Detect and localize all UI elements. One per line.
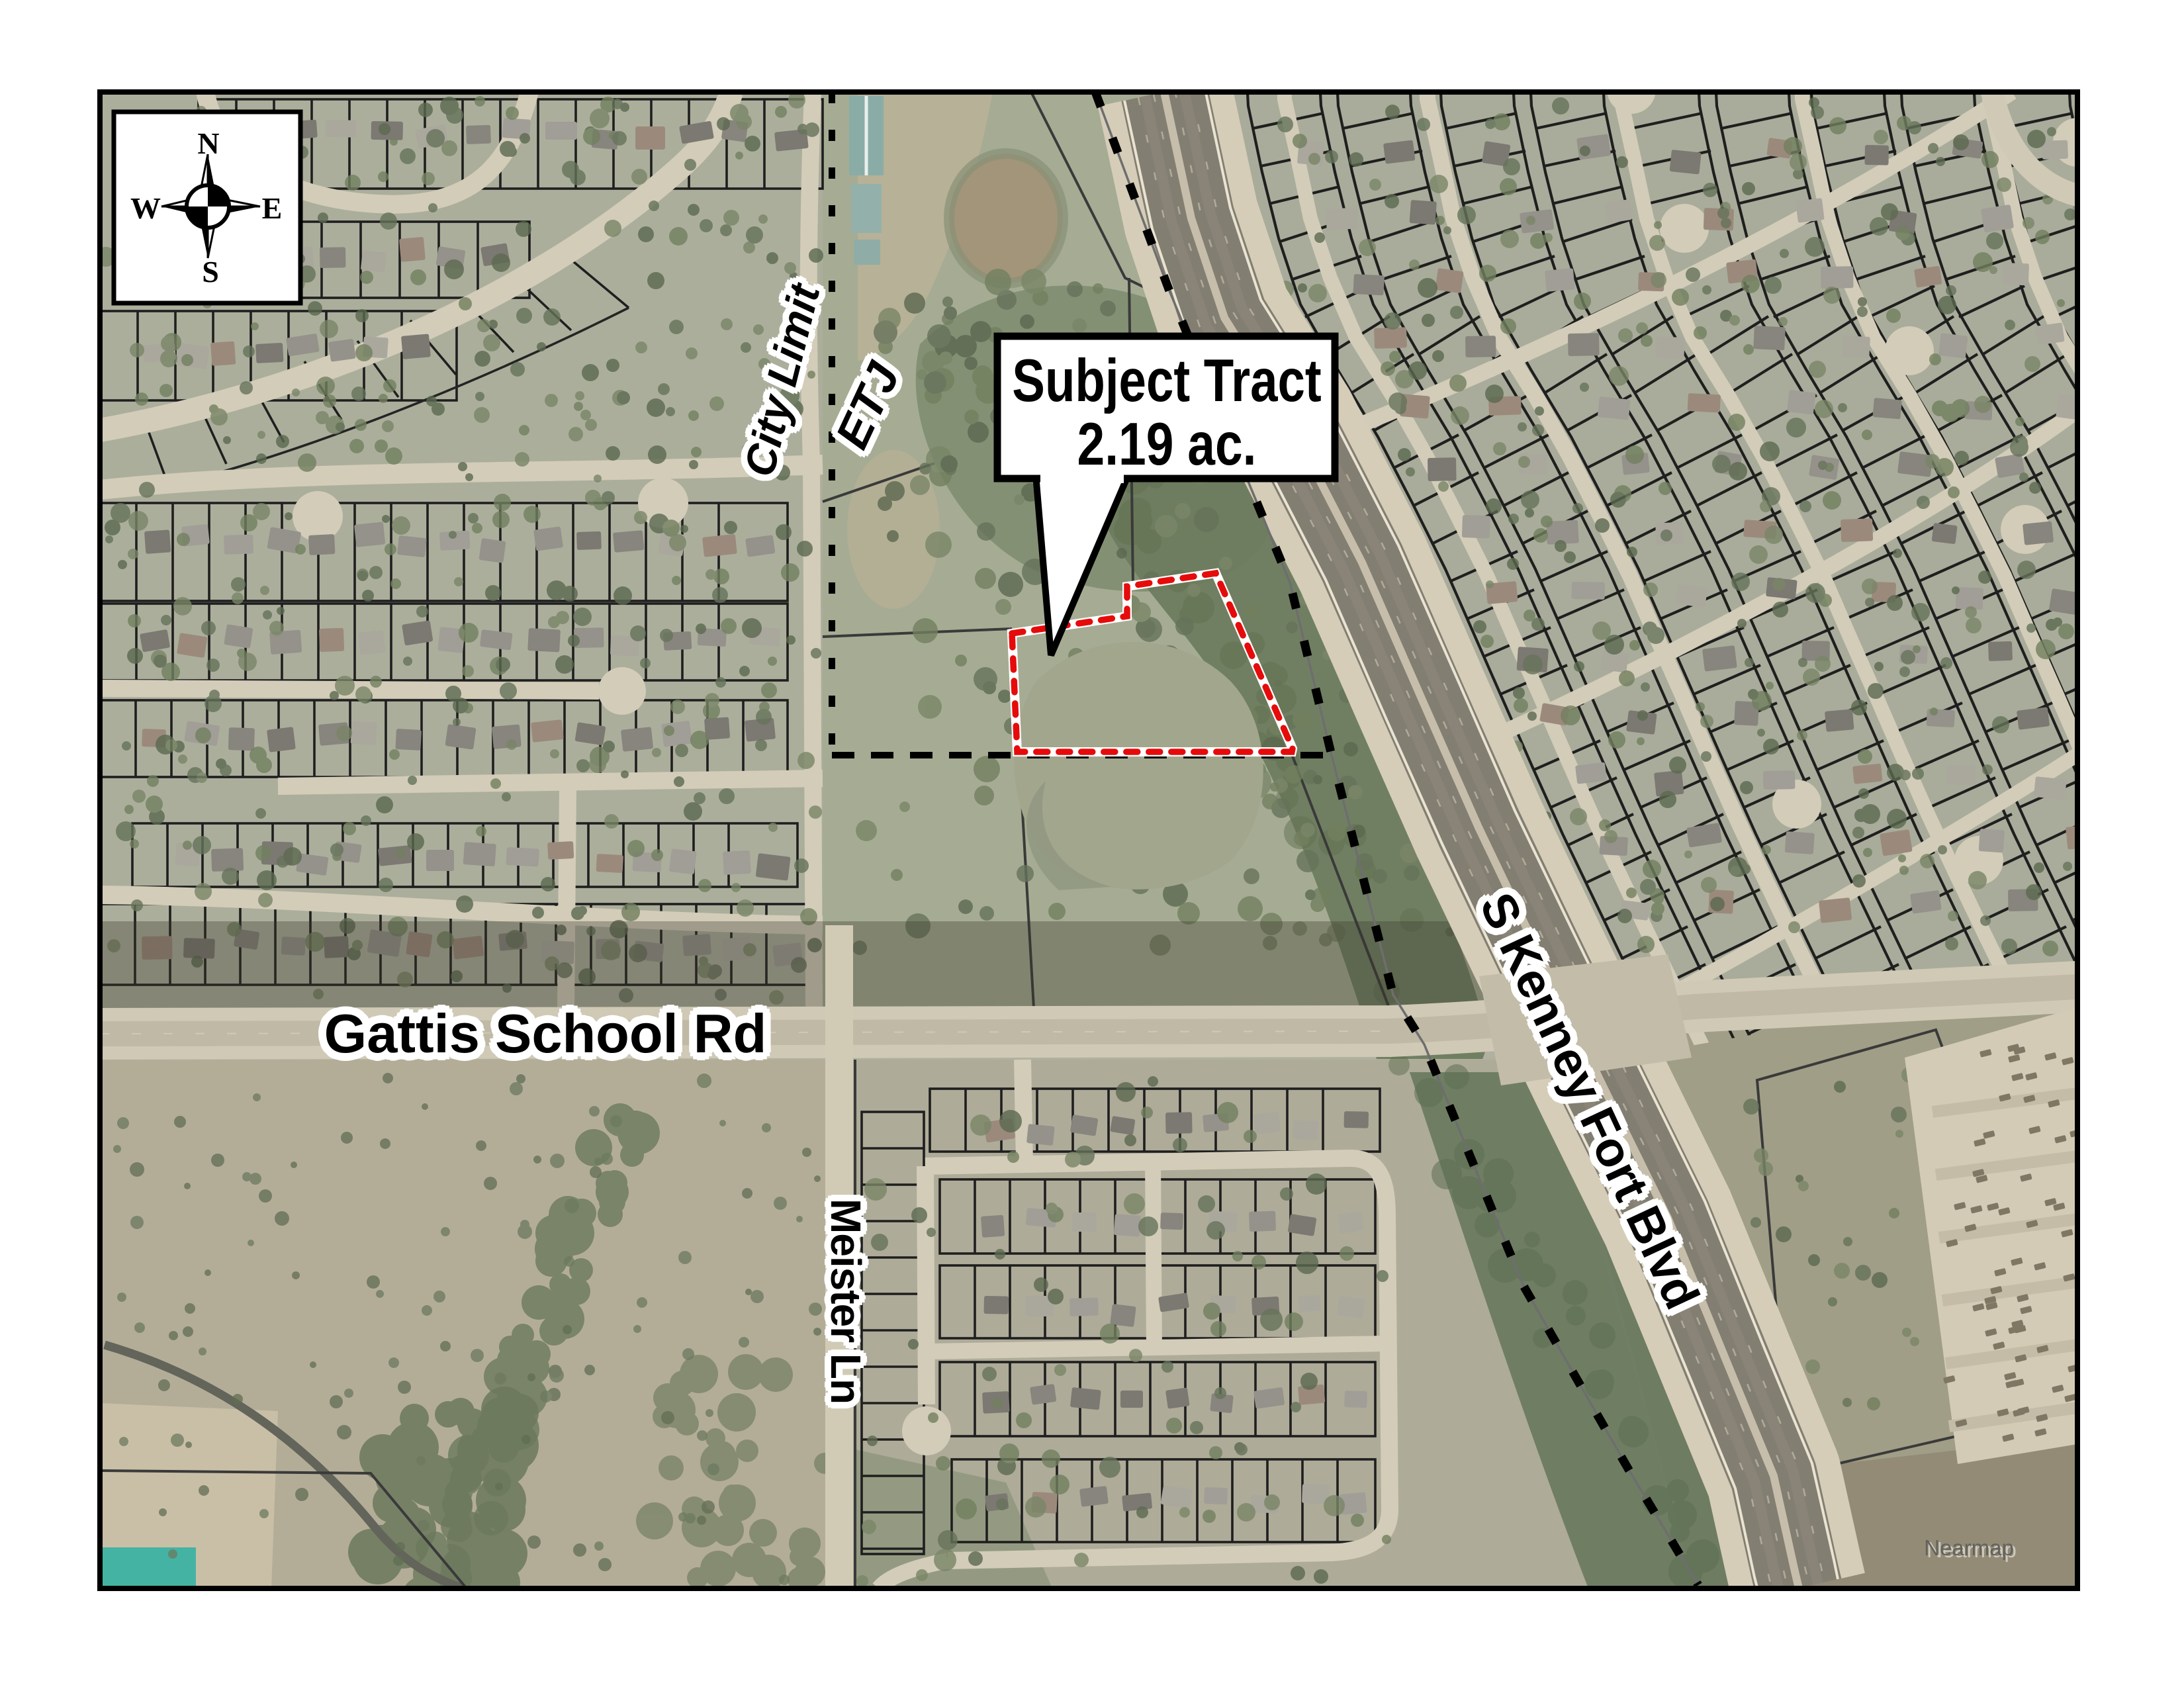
svg-text:E: E [262,191,283,225]
svg-text:Subject Tract: Subject Tract [1012,347,1321,414]
svg-text:S: S [202,255,219,289]
svg-text:Meister Ln: Meister Ln [822,1199,870,1404]
svg-text:Nearmap: Nearmap [1924,1535,2014,1560]
svg-text:Gattis School Rd: Gattis School Rd [324,1003,767,1064]
svg-text:2.19 ac.: 2.19 ac. [1077,410,1257,478]
svg-text:W: W [130,191,161,225]
svg-text:N: N [197,126,219,160]
